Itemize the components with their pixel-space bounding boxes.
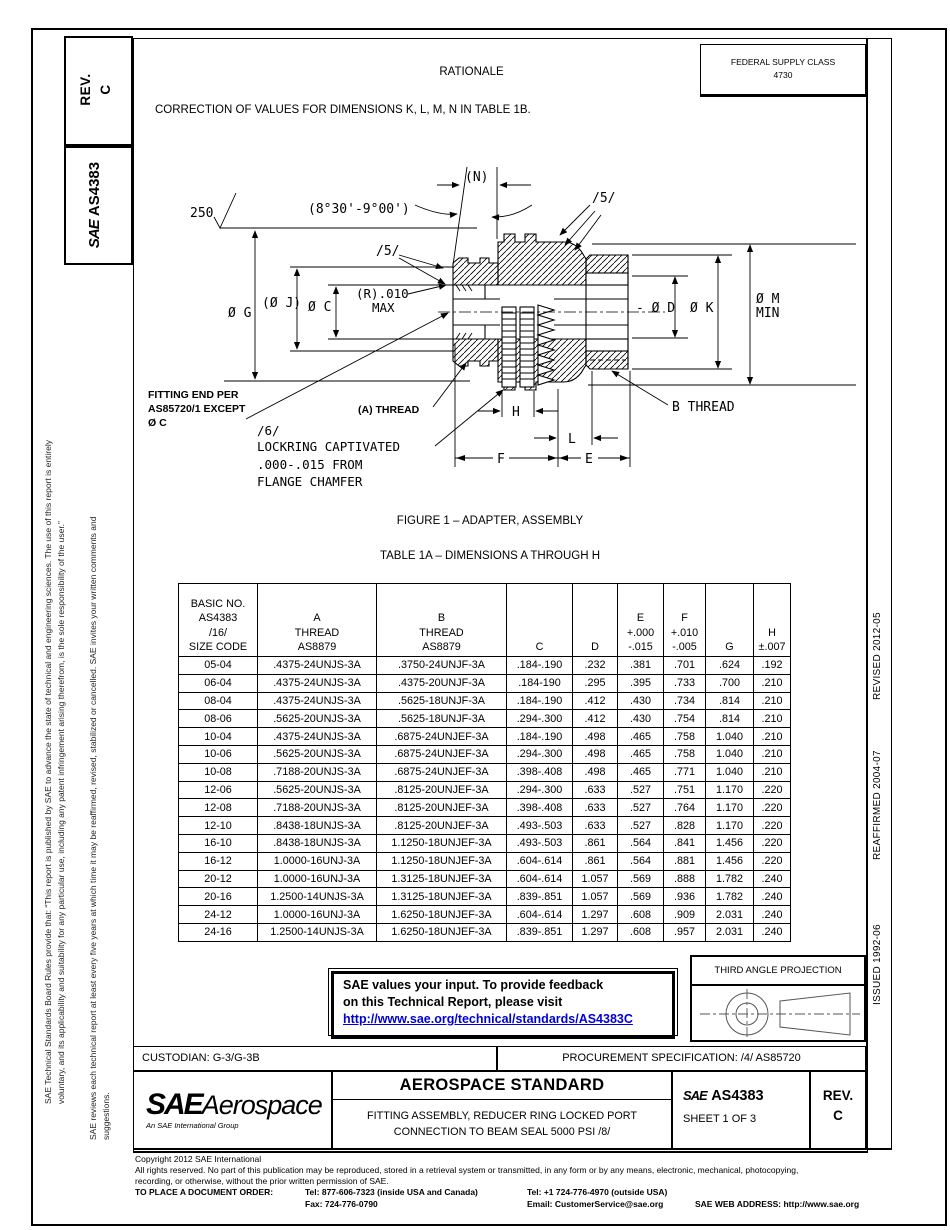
table-header-row: BASIC NO. AS4383 /16/ SIZE CODE A THREAD… xyxy=(179,584,791,657)
table-cell: .7188-20UNJS-3A xyxy=(258,799,377,817)
standard-type: AEROSPACE STANDARD xyxy=(333,1072,671,1100)
table-cell: 24-12 xyxy=(179,906,258,924)
table-cell: .220 xyxy=(754,834,791,852)
table-cell: .936 xyxy=(664,888,706,906)
table-row: 06-04.4375-24UNJS-3A.4375-20UNJF-3A.184-… xyxy=(179,674,791,692)
table-row: 12-06.5625-20UNJS-3A.8125-20UNJEF-3A.294… xyxy=(179,781,791,799)
b-thread-label: B THREAD xyxy=(672,400,735,415)
table-cell: .6875-24UNJEF-3A xyxy=(377,728,507,746)
table-cell: 12-08 xyxy=(179,799,258,817)
table-cell: .395 xyxy=(618,674,664,692)
table-cell: .909 xyxy=(664,906,706,924)
table-cell: 1.170 xyxy=(706,799,754,817)
dim-h-label: H xyxy=(512,405,520,420)
table-cell: .527 xyxy=(618,799,664,817)
table-cell: .771 xyxy=(664,763,706,781)
table-cell: .564 xyxy=(618,834,664,852)
table-row: 12-10.8438-18UNJS-3A.8125-20UNJEF-3A.493… xyxy=(179,817,791,835)
copyright-line2: All rights reserved. No part of this pub… xyxy=(135,1165,945,1176)
table-cell: .210 xyxy=(754,692,791,710)
table-cell: .8125-20UNJEF-3A xyxy=(377,817,507,835)
angle-label: (8°30'-9°00') xyxy=(308,202,410,217)
table-cell: .192 xyxy=(754,657,791,675)
sae-logo-icon: SAE xyxy=(146,1088,202,1121)
a-thread-label: (A) THREAD xyxy=(358,404,420,416)
table-cell: .839-.851 xyxy=(507,888,573,906)
figure1-drawing: 250 (8°30'-9°00') (N) /5/ /5/ Ø G (Ø J) … xyxy=(140,155,860,505)
sae-logo-icon: SAE xyxy=(86,220,103,248)
table-cell: .527 xyxy=(618,817,664,835)
table-row: 10-04.4375-24UNJS-3A.6875-24UNJEF-3A.184… xyxy=(179,728,791,746)
table-cell: .398-.408 xyxy=(507,799,573,817)
table-cell: 24-16 xyxy=(179,923,258,941)
table-cell: .240 xyxy=(754,888,791,906)
table-cell: .608 xyxy=(618,923,664,941)
table-row: 20-121.0000-16UNJ-3A1.3125-18UNJEF-3A.60… xyxy=(179,870,791,888)
table-cell: .733 xyxy=(664,674,706,692)
table-cell: .758 xyxy=(664,745,706,763)
revised-date: REVISED 2012-05 xyxy=(872,612,883,700)
table-cell: .210 xyxy=(754,728,791,746)
table-cell: .6875-24UNJEF-3A xyxy=(377,745,507,763)
table-cell: 1.2500-14UNJS-3A xyxy=(258,923,377,941)
col-a-thread: A THREAD AS8879 xyxy=(258,584,377,657)
table-cell: 16-12 xyxy=(179,852,258,870)
table-cell: 10-04 xyxy=(179,728,258,746)
table-cell: .294-.300 xyxy=(507,781,573,799)
table-cell: .210 xyxy=(754,674,791,692)
table-row: 24-161.2500-14UNJS-3A1.6250-18UNJEF-3A.8… xyxy=(179,923,791,941)
rationale-text: CORRECTION OF VALUES FOR DIMENSIONS K, L… xyxy=(155,104,531,116)
table-cell: 08-04 xyxy=(179,692,258,710)
feedback-box: SAE values your input. To provide feedba… xyxy=(328,968,678,1036)
lockring-label-1: LOCKRING CAPTIVATED xyxy=(257,439,400,454)
table-cell: .498 xyxy=(573,763,618,781)
table-cell: .839-.851 xyxy=(507,923,573,941)
table-cell: .4375-24UNJS-3A xyxy=(258,692,377,710)
third-angle-projection-box: THIRD ANGLE PROJECTION xyxy=(690,955,866,1042)
table-cell: .4375-24UNJS-3A xyxy=(258,674,377,692)
standard-subtitle-1: FITTING ASSEMBLY, REDUCER RING LOCKED PO… xyxy=(333,1108,671,1124)
table-cell: 2.031 xyxy=(706,906,754,924)
table-cell: 08-06 xyxy=(179,710,258,728)
table-cell: 1.1250-18UNJEF-3A xyxy=(377,852,507,870)
feedback-line2: on this Technical Report, please visit xyxy=(343,994,663,1011)
table-cell: .493-.503 xyxy=(507,817,573,835)
fitting-end-label-3: Ø C xyxy=(148,417,167,429)
table-cell: .498 xyxy=(573,728,618,746)
table-row: 16-10.8438-18UNJS-3A1.1250-18UNJEF-3A.49… xyxy=(179,834,791,852)
table-cell: .633 xyxy=(573,781,618,799)
copyright-line1: Copyright 2012 SAE International xyxy=(135,1154,945,1165)
table-cell: 12-06 xyxy=(179,781,258,799)
third-angle-projection-icon xyxy=(692,986,864,1041)
table-cell: .828 xyxy=(664,817,706,835)
issued-date: ISSUED 1992-06 xyxy=(872,924,883,1005)
dia-g-label: Ø G xyxy=(228,306,252,321)
table-cell: .751 xyxy=(664,781,706,799)
doc-number-vertical: SAE AS4383 xyxy=(86,154,103,256)
table-row: 24-121.0000-16UNJ-3A1.6250-18UNJEF-3A.60… xyxy=(179,906,791,924)
table-cell: 12-10 xyxy=(179,817,258,835)
rev-footer: REV. C xyxy=(810,1071,866,1150)
fitting-end-label-2: AS85720/1 EXCEPT xyxy=(148,403,246,415)
table-cell: .881 xyxy=(664,852,706,870)
table-cell: .8438-18UNJS-3A xyxy=(258,834,377,852)
table-cell: 1.456 xyxy=(706,852,754,870)
table-cell: 1.0000-16UNJ-3A xyxy=(258,852,377,870)
table-row: 08-04.4375-24UNJS-3A.5625-18UNJF-3A.184-… xyxy=(179,692,791,710)
table-cell: .734 xyxy=(664,692,706,710)
table-cell: .465 xyxy=(618,763,664,781)
table-cell: .220 xyxy=(754,781,791,799)
reaffirmed-date: REAFFIRMED 2004-07 xyxy=(872,750,883,860)
web-address: SAE WEB ADDRESS: http://www.sae.org xyxy=(695,1199,859,1210)
table-cell: 05-04 xyxy=(179,657,258,675)
table-cell: .6875-24UNJEF-3A xyxy=(377,763,507,781)
table-cell: .754 xyxy=(664,710,706,728)
table-cell: 2.031 xyxy=(706,923,754,941)
dimension-table: BASIC NO. AS4383 /16/ SIZE CODE A THREAD… xyxy=(178,583,791,942)
table-title: TABLE 1A – DIMENSIONS A THROUGH H xyxy=(130,550,850,562)
table-cell: .569 xyxy=(618,870,664,888)
table-cell: .861 xyxy=(573,834,618,852)
table-cell: 1.3125-18UNJEF-3A xyxy=(377,870,507,888)
sae-aerospace-logo: SAEAerospace An SAE International Group xyxy=(133,1071,332,1150)
col-e: E +.000 -.015 xyxy=(618,584,664,657)
table-cell: .4375-24UNJS-3A xyxy=(258,657,377,675)
dimension-table-body: 05-04.4375-24UNJS-3A.3750-24UNJF-3A.184-… xyxy=(179,657,791,942)
table-row: 08-06.5625-20UNJS-3A.5625-18UNJF-3A.294-… xyxy=(179,710,791,728)
table-cell: .210 xyxy=(754,763,791,781)
r-max-label-1: (R).010 xyxy=(356,286,409,301)
table-row: 16-121.0000-16UNJ-3A1.1250-18UNJEF-3A.60… xyxy=(179,852,791,870)
table-cell: .381 xyxy=(618,657,664,675)
table-cell: .430 xyxy=(618,692,664,710)
col-f: F +.010 -.005 xyxy=(664,584,706,657)
table-cell: .465 xyxy=(618,728,664,746)
phone-usa: Tel: 877-606-7323 (inside USA and Canada… xyxy=(305,1187,478,1198)
table-cell: .527 xyxy=(618,781,664,799)
table-cell: .841 xyxy=(664,834,706,852)
feedback-line1: SAE values your input. To provide feedba… xyxy=(343,977,663,994)
table-cell: 10-08 xyxy=(179,763,258,781)
table-cell: .608 xyxy=(618,906,664,924)
table-cell: .814 xyxy=(706,692,754,710)
table-cell: .412 xyxy=(573,692,618,710)
table-cell: .8125-20UNJEF-3A xyxy=(377,799,507,817)
table-cell: 1.6250-18UNJEF-3A xyxy=(377,906,507,924)
aerospace-logo-text: Aerospace xyxy=(202,1090,322,1120)
table-cell: .493-.503 xyxy=(507,834,573,852)
table-cell: .240 xyxy=(754,906,791,924)
table-cell: .210 xyxy=(754,745,791,763)
col-h: H ±.007 xyxy=(754,584,791,657)
col-g: G xyxy=(706,584,754,657)
doc-number-footer: AS4383 xyxy=(711,1088,763,1104)
flag5-top-label: /5/ xyxy=(592,191,615,206)
surface-finish-label: 250 xyxy=(190,206,213,221)
table-cell: .184-190 xyxy=(507,674,573,692)
rationale-title: RATIONALE xyxy=(133,66,810,78)
table-cell: .220 xyxy=(754,799,791,817)
table-cell: .957 xyxy=(664,923,706,941)
table-row: 12-08.7188-20UNJS-3A.8125-20UNJEF-3A.398… xyxy=(179,799,791,817)
table-cell: .240 xyxy=(754,870,791,888)
col-b-thread: B THREAD AS8879 xyxy=(377,584,507,657)
dim-e-label: E xyxy=(585,452,593,467)
flag5-left-label: /5/ xyxy=(376,244,399,259)
table-cell: .240 xyxy=(754,923,791,941)
table-cell: 1.3125-18UNJEF-3A xyxy=(377,888,507,906)
fitting-end-label-1: FITTING END PER xyxy=(148,389,239,401)
table-row: 10-06.5625-20UNJS-3A.6875-24UNJEF-3A.294… xyxy=(179,745,791,763)
table-cell: .5625-18UNJF-3A xyxy=(377,692,507,710)
table-cell: .7188-20UNJS-3A xyxy=(258,763,377,781)
sae-logo-icon-small: SAE xyxy=(683,1088,707,1103)
rev-label: REV. C xyxy=(76,47,117,132)
table-cell: .232 xyxy=(573,657,618,675)
col-c: C xyxy=(507,584,573,657)
projection-label: THIRD ANGLE PROJECTION xyxy=(692,957,864,986)
table-cell: .4375-20UNJF-3A xyxy=(377,674,507,692)
feedback-link[interactable]: http://www.sae.org/technical/standards/A… xyxy=(343,1012,633,1026)
table-cell: 1.0000-16UNJ-3A xyxy=(258,870,377,888)
n-dim-label: (N) xyxy=(465,170,488,185)
dia-j-label: (Ø J) xyxy=(262,296,301,311)
phone-intl: Tel: +1 724-776-4970 (outside USA) xyxy=(527,1187,667,1198)
email-address: Email: CustomerService@sae.org xyxy=(527,1199,663,1210)
figure-caption: FIGURE 1 – ADAPTER, ASSEMBLY xyxy=(130,515,850,527)
table-cell: 1.040 xyxy=(706,763,754,781)
table-cell: .700 xyxy=(706,674,754,692)
table-cell: .220 xyxy=(754,852,791,870)
legal-text-1: SAE Technical Standards Board Rules prov… xyxy=(42,280,68,1104)
table-cell: .861 xyxy=(573,852,618,870)
table-cell: .398-.408 xyxy=(507,763,573,781)
table-cell: .8438-18UNJS-3A xyxy=(258,817,377,835)
dia-m-label-1: Ø M xyxy=(756,292,780,307)
table-cell: 1.782 xyxy=(706,870,754,888)
custodian: CUSTODIAN: G-3/G-3B xyxy=(133,1046,497,1071)
table-cell: .294-.300 xyxy=(507,710,573,728)
table-cell: .295 xyxy=(573,674,618,692)
copyright-block: Copyright 2012 SAE International All rig… xyxy=(135,1154,945,1211)
table-cell: .498 xyxy=(573,745,618,763)
table-cell: 1.040 xyxy=(706,728,754,746)
dia-d-label: - Ø D xyxy=(636,301,675,316)
table-cell: 1.057 xyxy=(573,888,618,906)
standard-title-box: AEROSPACE STANDARD FITTING ASSEMBLY, RED… xyxy=(332,1071,672,1150)
table-cell: .764 xyxy=(664,799,706,817)
lockring-label-2: .000-.015 FROM xyxy=(257,457,362,472)
table-cell: 06-04 xyxy=(179,674,258,692)
table-cell: .814 xyxy=(706,710,754,728)
table-cell: 1.170 xyxy=(706,817,754,835)
table-cell: 10-06 xyxy=(179,745,258,763)
dia-m-label-2: MIN xyxy=(756,306,779,321)
table-cell: 1.297 xyxy=(573,906,618,924)
table-cell: .184-.190 xyxy=(507,692,573,710)
table-cell: .294-.300 xyxy=(507,745,573,763)
table-cell: .8125-20UNJEF-3A xyxy=(377,781,507,799)
table-cell: .430 xyxy=(618,710,664,728)
table-row: 10-08.7188-20UNJS-3A.6875-24UNJEF-3A.398… xyxy=(179,763,791,781)
part-section xyxy=(438,234,665,390)
table-cell: 1.1250-18UNJEF-3A xyxy=(377,834,507,852)
table-cell: .624 xyxy=(706,657,754,675)
copyright-line3: recording, or otherwise, without the pri… xyxy=(135,1176,945,1187)
table-cell: .604-.614 xyxy=(507,852,573,870)
table-cell: .412 xyxy=(573,710,618,728)
table-row: 20-161.2500-14UNJS-3A1.3125-18UNJEF-3A.8… xyxy=(179,888,791,906)
table-cell: .184-.190 xyxy=(507,657,573,675)
table-cell: 1.170 xyxy=(706,781,754,799)
table-cell: .3750-24UNJF-3A xyxy=(377,657,507,675)
sheet-number: SHEET 1 OF 3 xyxy=(683,1113,809,1125)
doc-number-text: AS4383 xyxy=(86,162,103,216)
table-cell: .5625-20UNJS-3A xyxy=(258,781,377,799)
logo-tagline: An SAE International Group xyxy=(146,1121,331,1130)
table-cell: .220 xyxy=(754,817,791,835)
table-cell: 20-16 xyxy=(179,888,258,906)
col-d: D xyxy=(573,584,618,657)
table-cell: 1.456 xyxy=(706,834,754,852)
dia-c-label: Ø C xyxy=(308,300,331,315)
table-cell: 1.297 xyxy=(573,923,618,941)
table-cell: .569 xyxy=(618,888,664,906)
table-cell: 20-12 xyxy=(179,870,258,888)
order-label: TO PLACE A DOCUMENT ORDER: xyxy=(135,1187,273,1198)
col-size-code: BASIC NO. AS4383 /16/ SIZE CODE xyxy=(179,584,258,657)
flag6-label: /6/ xyxy=(257,423,280,438)
table-cell: 1.057 xyxy=(573,870,618,888)
table-cell: .888 xyxy=(664,870,706,888)
dia-k-label: Ø K xyxy=(690,301,714,316)
table-cell: 1.782 xyxy=(706,888,754,906)
figure-labels: 250 (8°30'-9°00') (N) /5/ /5/ Ø G (Ø J) … xyxy=(148,170,780,489)
table-cell: 16-10 xyxy=(179,834,258,852)
table-cell: 1.2500-14UNJS-3A xyxy=(258,888,377,906)
fax-number: Fax: 724-776-0790 xyxy=(305,1199,378,1210)
table-cell: .564 xyxy=(618,852,664,870)
table-cell: 1.0000-16UNJ-3A xyxy=(258,906,377,924)
table-cell: .758 xyxy=(664,728,706,746)
table-cell: 1.040 xyxy=(706,745,754,763)
table-cell: 1.6250-18UNJEF-3A xyxy=(377,923,507,941)
table-cell: .5625-20UNJS-3A xyxy=(258,710,377,728)
table-cell: .465 xyxy=(618,745,664,763)
table-cell: .4375-24UNJS-3A xyxy=(258,728,377,746)
table-cell: .604-.614 xyxy=(507,870,573,888)
dim-f-label: F xyxy=(497,452,505,467)
dim-l-label: L xyxy=(568,432,576,447)
table-cell: .184-.190 xyxy=(507,728,573,746)
procurement-specification: PROCUREMENT SPECIFICATION: /4/ AS85720 xyxy=(497,1046,866,1071)
lockring-label-3: FLANGE CHAMFER xyxy=(257,474,363,489)
table-cell: .604-.614 xyxy=(507,906,573,924)
standard-subtitle-2: CONNECTION TO BEAM SEAL 5000 PSI /8/ xyxy=(333,1124,671,1140)
table-cell: .633 xyxy=(573,817,618,835)
table-cell: .701 xyxy=(664,657,706,675)
legal-text-2: SAE reviews each technical report at lea… xyxy=(87,284,113,1140)
r-max-label-2: MAX xyxy=(372,300,395,315)
table-cell: .5625-20UNJS-3A xyxy=(258,745,377,763)
table-cell: .5625-18UNJF-3A xyxy=(377,710,507,728)
table-cell: .210 xyxy=(754,710,791,728)
table-row: 05-04.4375-24UNJS-3A.3750-24UNJF-3A.184-… xyxy=(179,657,791,675)
doc-id-box: SAE AS4383 SHEET 1 OF 3 xyxy=(672,1071,810,1150)
table-cell: .633 xyxy=(573,799,618,817)
